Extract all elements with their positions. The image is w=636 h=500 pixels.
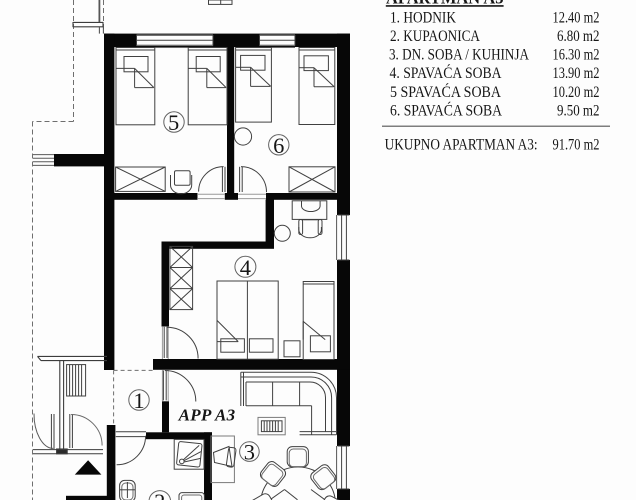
svg-text:4. SPAVAĆA SOBA: 4. SPAVAĆA SOBA: [390, 63, 502, 82]
svg-text:5 SPAVAĆA SOBA: 5 SPAVAĆA SOBA: [390, 82, 501, 101]
svg-text:12.40 m2: 12.40 m2: [553, 9, 600, 26]
svg-text:4: 4: [240, 255, 251, 280]
svg-text:10.20 m2: 10.20 m2: [553, 84, 600, 101]
svg-text:1: 1: [133, 388, 144, 413]
svg-text:3. DN. SOBA / KUHINJA: 3. DN. SOBA / KUHINJA: [389, 47, 529, 64]
svg-text:3: 3: [244, 440, 255, 465]
svg-text:UKUPNO APARTMAN A3:: UKUPNO APARTMAN A3:: [385, 137, 538, 154]
svg-text:6. SPAVAĆA SOBA: 6. SPAVAĆA SOBA: [390, 101, 502, 120]
svg-text:6: 6: [273, 133, 284, 158]
svg-text:6.80 m2: 6.80 m2: [557, 28, 600, 45]
svg-text:13.90 m2: 13.90 m2: [553, 65, 600, 82]
svg-text:9.50 m2: 9.50 m2: [557, 103, 600, 120]
svg-text:2: 2: [154, 489, 165, 500]
svg-text:APP A3: APP A3: [178, 405, 236, 424]
svg-text:5: 5: [168, 110, 179, 135]
svg-text:2. KUPAONICA: 2. KUPAONICA: [390, 28, 480, 45]
svg-text:16.30 m2: 16.30 m2: [553, 47, 600, 64]
svg-text:1. HODNIK: 1. HODNIK: [390, 9, 456, 26]
svg-text:91.70 m2: 91.70 m2: [553, 137, 600, 154]
